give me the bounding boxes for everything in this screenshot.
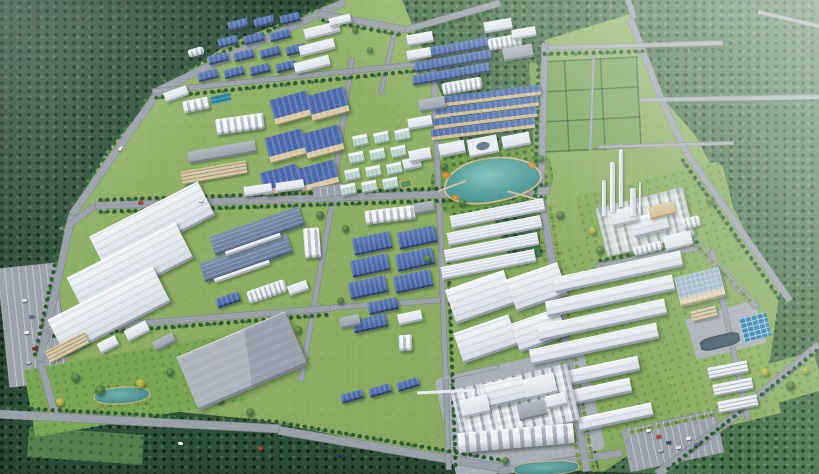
flower-bed-2	[528, 163, 536, 168]
chem-stack-2	[619, 149, 623, 207]
park-tree-11	[786, 381, 795, 390]
garden-tree-2	[537, 155, 544, 162]
lawn-tree-3	[136, 379, 145, 388]
garden-tree-4	[459, 199, 466, 206]
chem-stack-3	[602, 180, 606, 216]
car-se1	[645, 428, 650, 431]
park-tree-8	[589, 227, 596, 234]
lab-d11	[361, 179, 378, 193]
flower-bed-3	[451, 195, 459, 200]
industrial-park-aerial-rendering	[0, 0, 819, 474]
park-tree-5	[424, 255, 431, 262]
park-tree-7	[596, 246, 604, 254]
lab-d2	[373, 130, 390, 144]
car-se3	[665, 440, 670, 443]
park-tree-2	[342, 225, 349, 232]
lawn-tree-4	[166, 368, 174, 376]
lab-d8	[365, 164, 382, 178]
car-2	[257, 447, 262, 450]
lab-d4	[348, 150, 365, 164]
park-tree-14	[367, 47, 373, 53]
park-tree-6	[556, 211, 564, 219]
lab-d10	[340, 182, 357, 196]
lab-d1	[352, 133, 369, 147]
park-tree-10	[761, 368, 769, 376]
car-w4	[31, 346, 36, 349]
car-w1	[21, 298, 26, 301]
lawn-tree-6	[56, 398, 64, 406]
chem-stack-1	[610, 162, 615, 212]
lab-d5	[369, 147, 386, 161]
car-3	[337, 453, 342, 456]
lab-d6	[390, 144, 407, 158]
park-tree-3	[294, 326, 302, 334]
park-tree-15	[352, 27, 358, 33]
lawn-tree-2	[95, 385, 105, 395]
garden-tree-1	[440, 163, 447, 170]
lab-d12	[382, 176, 399, 190]
tank-pair-j	[398, 335, 412, 352]
flower-bed-1	[441, 172, 451, 178]
car-w5	[25, 360, 30, 363]
car-se7	[693, 442, 698, 445]
tank-pair-i	[303, 227, 321, 258]
car-1	[177, 442, 182, 445]
car-4	[197, 199, 202, 202]
car-se5	[657, 448, 662, 451]
chem-flare-tower	[639, 182, 642, 214]
park-tree-13	[502, 457, 509, 464]
lab-d9	[386, 161, 403, 175]
car-w3	[23, 330, 28, 333]
park-tree-4	[337, 297, 344, 304]
park-tree-9	[706, 196, 714, 204]
car-se2	[655, 434, 660, 437]
car-se6	[685, 436, 690, 439]
car-w2	[28, 314, 33, 317]
lab-d3	[394, 127, 411, 141]
car-5	[137, 201, 142, 204]
lawn-tree-1	[71, 373, 80, 382]
park-tree-1	[316, 211, 324, 219]
park-tree-12	[802, 367, 809, 374]
car-se4	[675, 445, 680, 448]
lawn-tree-8	[246, 408, 254, 416]
chem-stack-4	[630, 188, 636, 216]
lab-d7	[344, 167, 361, 181]
